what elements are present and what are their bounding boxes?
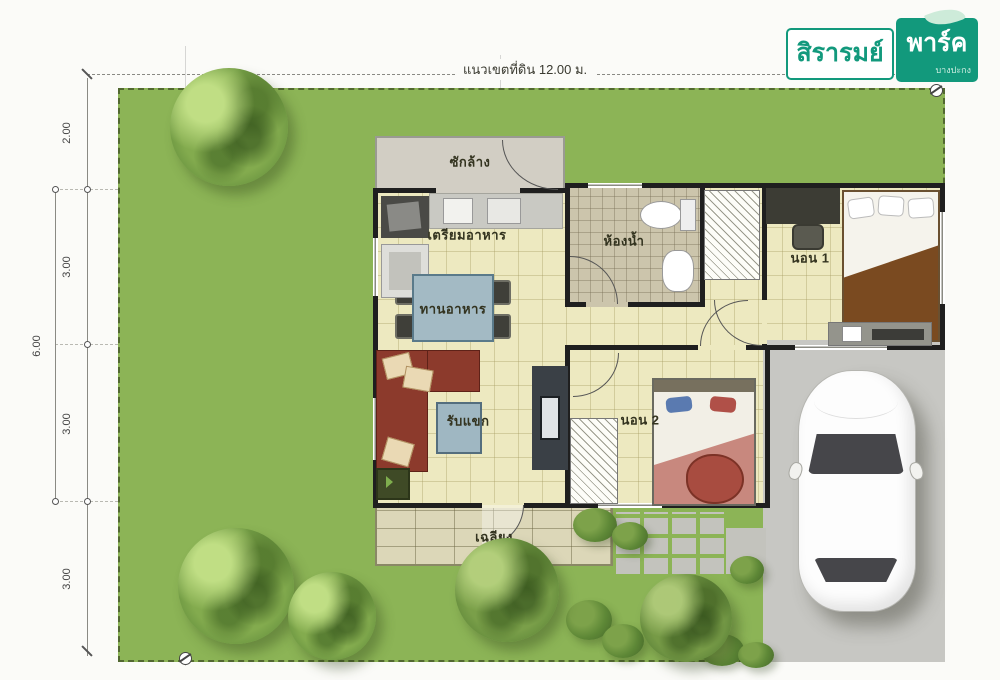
- pillow-red: [709, 396, 736, 413]
- planter: [376, 468, 410, 500]
- room-label-kitchen: เตรียมอาหาร: [427, 225, 506, 246]
- shrub: [612, 522, 648, 550]
- survey-marker: [179, 652, 192, 665]
- toilet-bowl: [640, 201, 682, 229]
- dimension-node: [52, 498, 59, 505]
- bathroom-sink: [662, 250, 694, 292]
- bedroom1-bed: [842, 190, 940, 342]
- dimension-node: [84, 341, 91, 348]
- dimension-line-inner: [87, 78, 88, 656]
- wall-segment: [765, 345, 770, 508]
- toilet-tank: [680, 199, 696, 231]
- pillow: [907, 197, 934, 219]
- room-label-bedroom2: นอน 2: [621, 410, 660, 431]
- dimension-node: [52, 186, 59, 193]
- brand-park-label: พาร์ค: [896, 30, 978, 56]
- shrub: [573, 508, 617, 542]
- door-gap: [762, 300, 767, 344]
- pillow-blue: [665, 396, 692, 414]
- room-label-living: รับแขก: [447, 411, 490, 432]
- tree: [288, 572, 376, 660]
- dim-left-1: 3.00: [61, 250, 75, 284]
- bedroom2-wardrobe: [570, 418, 618, 504]
- car-rear-window: [814, 558, 898, 582]
- tv-screen: [540, 396, 560, 440]
- dresser-item: [872, 329, 924, 340]
- dining-chair: [491, 314, 511, 339]
- kitchen-stove: [487, 198, 521, 224]
- tree: [178, 528, 294, 644]
- window: [940, 212, 945, 304]
- brand-name: สิรารมย์: [786, 28, 894, 80]
- pillow: [877, 195, 904, 217]
- shrub: [730, 556, 764, 584]
- room-label-bathroom: ห้องน้ำ: [604, 231, 645, 252]
- dimension-node: [84, 186, 91, 193]
- dimension-node: [84, 498, 91, 505]
- dimension-line-outer: [55, 189, 56, 502]
- pillow: [847, 196, 876, 219]
- tree: [455, 538, 559, 642]
- kitchen-sink: [443, 198, 473, 224]
- room-label-dining: ทานอาหาร: [420, 299, 487, 320]
- brand-logo: สิรารมย์ พาร์ค บางปะกง: [786, 14, 980, 86]
- dresser-item: [842, 326, 862, 342]
- beanbag: [686, 454, 744, 504]
- dim-left-3: 3.00: [61, 562, 75, 596]
- bedroom1-chair: [792, 224, 824, 250]
- floor-plan: 2.00 3.00 3.00 3.00 6.00 แนวเขตที่ดิน 12…: [0, 0, 1000, 680]
- tree: [640, 574, 732, 662]
- boundary-label: แนวเขตที่ดิน 12.00 ม.: [455, 59, 595, 80]
- kitchen-corner-cabinet-top: [387, 201, 422, 231]
- sofa-cushion: [402, 366, 433, 393]
- car-hood-line: [814, 384, 898, 419]
- tree: [170, 68, 288, 186]
- dim-left-outer: 6.00: [31, 329, 45, 363]
- headboard: [654, 380, 756, 392]
- room-label-bedroom1: นอน 1: [791, 248, 830, 269]
- brand-park-badge: พาร์ค บางปะกง: [896, 18, 978, 82]
- shrub: [602, 624, 644, 658]
- bedroom1-desk: [766, 188, 840, 224]
- brand-sub-label: บางปะกง: [935, 63, 971, 77]
- dining-chair: [491, 280, 511, 305]
- room-label-laundry: ซักล้าง: [450, 152, 491, 173]
- dim-left-0: 2.00: [61, 116, 75, 150]
- planter-leaf: [386, 476, 393, 488]
- car-windshield: [808, 434, 904, 474]
- shrub: [738, 642, 774, 668]
- car: [798, 370, 914, 610]
- window: [373, 238, 378, 296]
- bedroom2-bed: [652, 378, 756, 506]
- window: [588, 183, 642, 188]
- dim-left-2: 3.00: [61, 407, 75, 441]
- hall-closet: [704, 190, 760, 280]
